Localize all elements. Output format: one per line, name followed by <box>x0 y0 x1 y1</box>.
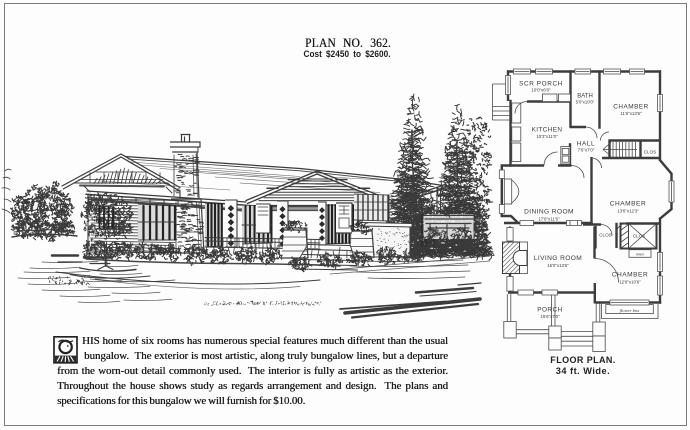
svg-text:KITCHEN: KITCHEN <box>532 127 563 134</box>
svg-text:CHAMBER: CHAMBER <box>612 272 648 279</box>
svg-text:5'0"x10'0": 5'0"x10'0" <box>576 100 595 105</box>
svg-text:HALL: HALL <box>577 141 595 148</box>
svg-text:CHAMBER: CHAMBER <box>613 104 648 111</box>
svg-text:11'6"x13'6": 11'6"x13'6" <box>620 111 642 116</box>
svg-text:13'6"x12'3": 13'6"x12'3" <box>617 208 639 213</box>
svg-text:flower box: flower box <box>620 308 640 313</box>
svg-text:CLOS: CLOS <box>599 233 612 238</box>
svg-text:CHAMBER: CHAMBER <box>610 201 646 208</box>
svg-text:16'6"x7'0": 16'6"x7'0" <box>540 314 560 319</box>
svg-text:PORCH: PORCH <box>537 307 563 314</box>
svg-text:17'6"x11'6": 17'6"x11'6" <box>538 216 560 221</box>
svg-text:LIVING ROOM: LIVING ROOM <box>534 255 582 262</box>
svg-text:12'0"x10'6": 12'0"x10'6" <box>619 279 641 284</box>
svg-text:10'0"x6'0": 10'0"x6'0" <box>531 88 551 93</box>
svg-text:16'0"x13'6": 16'0"x13'6" <box>547 263 569 268</box>
svg-text:SCR PORCH: SCR PORCH <box>519 81 563 88</box>
svg-text:DINING ROOM: DINING ROOM <box>524 209 574 216</box>
svg-text:10'3"x11'0": 10'3"x11'0" <box>536 134 558 139</box>
svg-text:CLOS: CLOS <box>633 234 646 239</box>
svg-text:CLOS: CLOS <box>644 150 657 155</box>
svg-text:7'6"x7'0": 7'6"x7'0" <box>578 148 595 153</box>
svg-text:linen: linen <box>636 253 644 257</box>
